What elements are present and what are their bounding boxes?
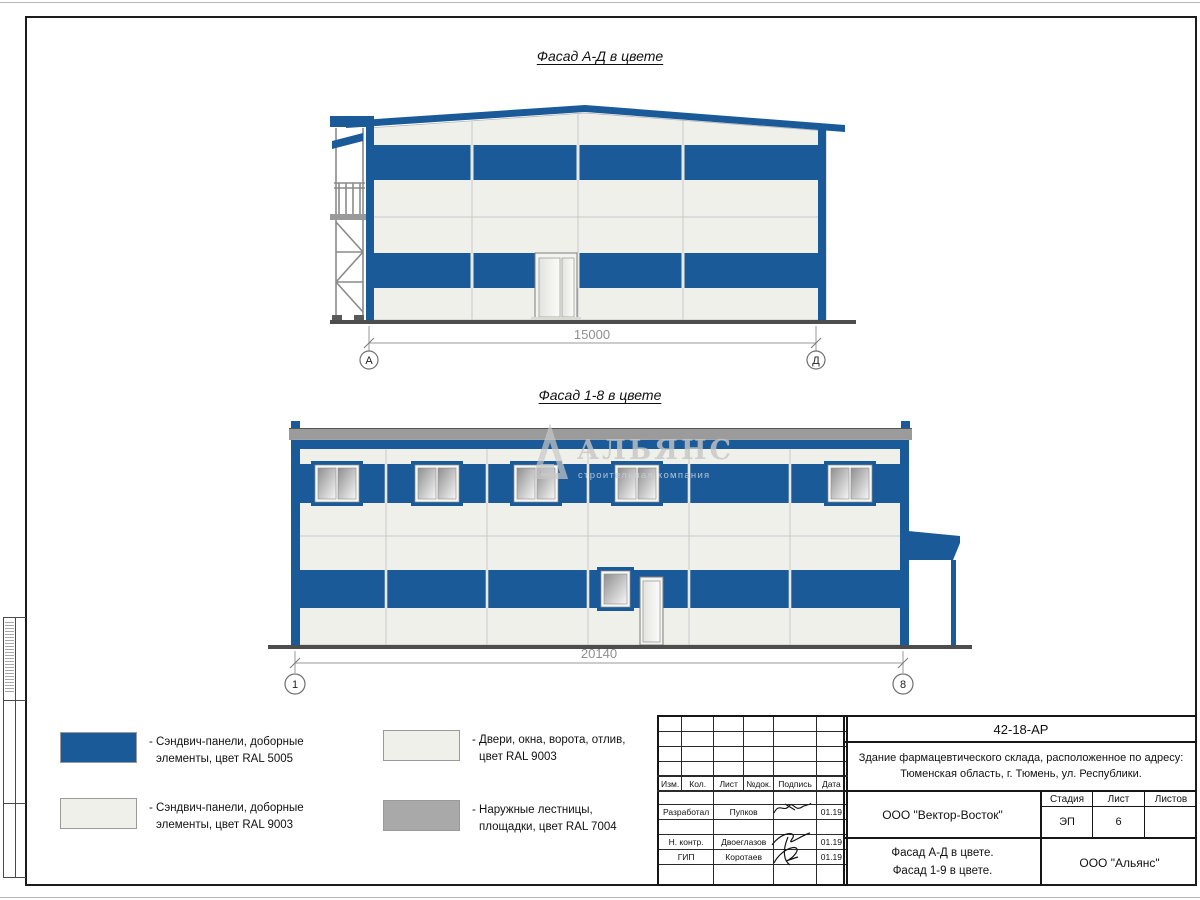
left-strip-line: [3, 617, 26, 618]
legend-swatch-white: [383, 730, 460, 761]
legend-label: - Сэндвич-панели, доборныеэлементы, цвет…: [149, 732, 304, 767]
designer-org-cell: ООО "Вектор-Восток": [843, 790, 1040, 837]
sheets-header: Листов: [1144, 790, 1197, 806]
table-header-row: Изм. Кол. Лист №док. Подпись Дата: [658, 776, 847, 791]
legend-swatch-blue: [60, 732, 137, 763]
title-block-signature-table: Изм. Кол. Лист №док. Подпись Дата Разраб…: [657, 715, 848, 886]
doc-number-cell: 42-18-АР: [843, 715, 1197, 741]
row-ncontrol: Н. контр. Двоеглазов 01.19: [658, 834, 847, 849]
signature-pupkov: [771, 800, 813, 817]
stage-value: ЭП: [1040, 806, 1092, 837]
legend-label: - Двери, окна, ворота, отлив,цвет RAL 90…: [472, 730, 625, 765]
drawing-sheet: 15000 А Д: [0, 0, 1200, 900]
project-line2: Тюменская область, г. Тюмень, ул. Респуб…: [900, 767, 1142, 782]
org-cell: ООО "Альянс": [1040, 837, 1197, 886]
legend-item-ral7004: - Наружные лестницы,площадки, цвет RAL 7…: [383, 800, 653, 835]
legend-label: - Наружные лестницы,площадки, цвет RAL 7…: [472, 800, 617, 835]
row-developer: Разработал Пупков 01.19: [658, 804, 847, 819]
sheet-title-line1: Фасад А-Д в цвете.: [891, 845, 993, 862]
role: Разработал: [658, 804, 714, 819]
name: Двоеглазов: [714, 834, 774, 849]
sheet-title-cell: Фасад А-Д в цвете. Фасад 1-9 в цвете.: [843, 837, 1040, 886]
project-name-cell: Здание фармацевтического склада, располо…: [843, 741, 1197, 790]
legend-item-ral5005: - Сэндвич-панели, доборныеэлементы, цвет…: [60, 732, 360, 767]
facade-ad-title: Фасад А-Д в цвете: [0, 48, 1200, 64]
left-strip-line: [3, 700, 26, 701]
legend-label: - Сэндвич-панели, доборныеэлементы, цвет…: [149, 798, 304, 833]
row-gip: ГИП Коротаев 01.19: [658, 849, 847, 864]
name: Коротаев: [714, 849, 774, 864]
stage-header: Стадия: [1040, 790, 1092, 806]
role: ГИП: [658, 849, 714, 864]
left-strip-line: [15, 617, 16, 877]
facade-18-title: Фасад 1-8 в цвете: [0, 387, 1200, 403]
name: Пупков: [714, 804, 774, 819]
left-strip-line: [3, 617, 4, 877]
signatures-dvoeglazov-korotaev: [768, 829, 814, 867]
left-strip-stamp-marks: [5, 622, 14, 694]
sheet-value: 6: [1092, 806, 1144, 837]
col-podpis: Подпись: [774, 776, 817, 791]
col-kol: Кол.: [682, 776, 714, 791]
legend-swatch-grey: [383, 800, 460, 831]
col-list: Лист: [714, 776, 744, 791]
left-strip-line: [3, 877, 26, 878]
col-izm: Изм.: [658, 776, 682, 791]
legend-swatch-white: [60, 798, 137, 829]
left-strip-line: [3, 803, 26, 804]
legend-item-ral9003-panels: - Сэндвич-панели, доборныеэлементы, цвет…: [60, 798, 360, 833]
col-ndok: №док.: [744, 776, 774, 791]
sheet-header: Лист: [1092, 790, 1144, 806]
project-line1: Здание фармацевтического склада, располо…: [859, 751, 1184, 766]
role: Н. контр.: [658, 834, 714, 849]
sheet-title-line2: Фасад 1-9 в цвете.: [893, 863, 993, 880]
sheets-value: [1144, 806, 1197, 837]
legend-item-ral9003-doors: - Двери, окна, ворота, отлив,цвет RAL 90…: [383, 730, 653, 765]
